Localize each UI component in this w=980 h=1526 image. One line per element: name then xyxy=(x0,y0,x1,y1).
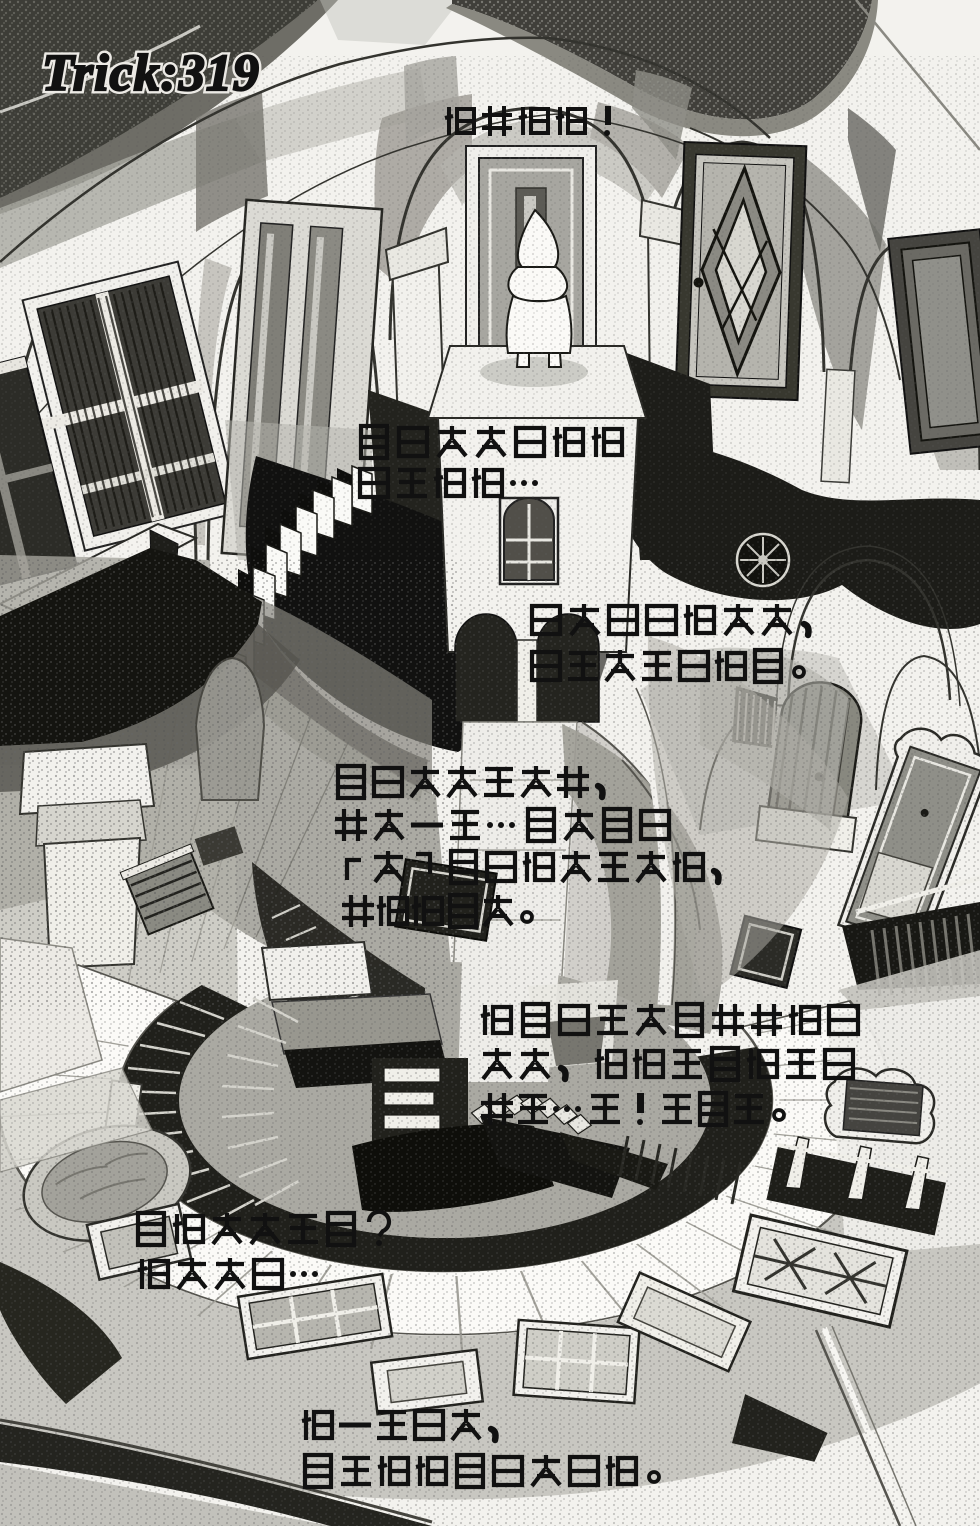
svg-text:Trick:319: Trick:319 xyxy=(42,45,260,102)
